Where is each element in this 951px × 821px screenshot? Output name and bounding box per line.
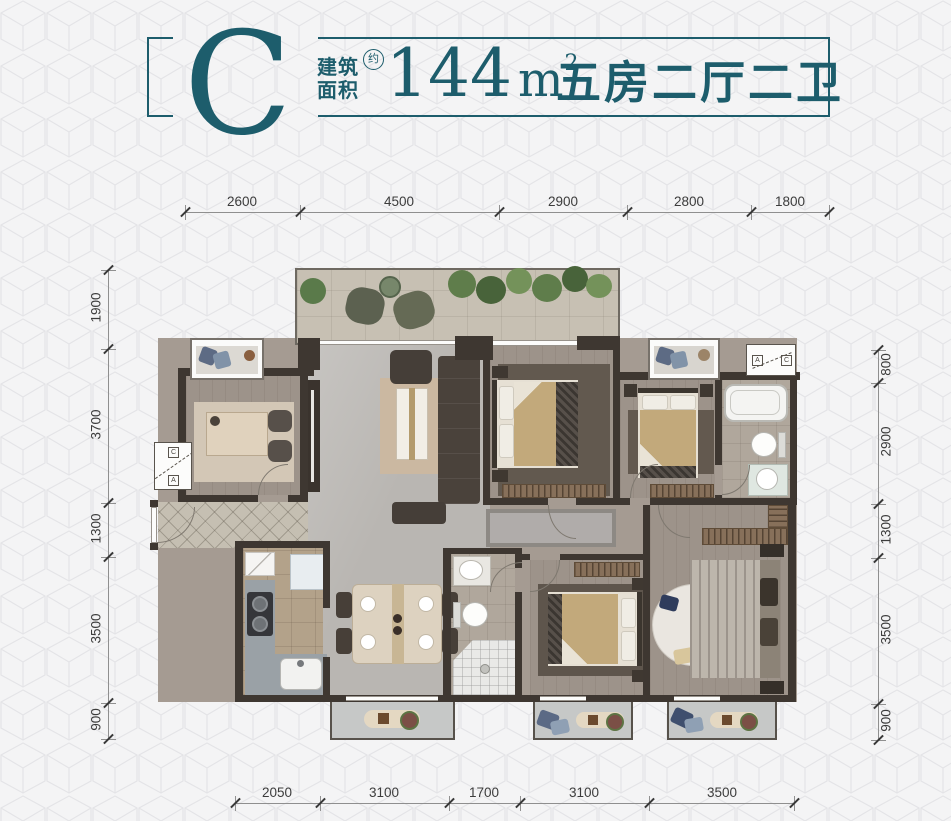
bed-headboard (637, 592, 642, 666)
toilet-tank (778, 432, 786, 458)
dimension-top: 2600 4500 2900 2800 1800 (185, 196, 830, 220)
wall (613, 338, 620, 505)
bed-headboard (492, 380, 497, 468)
fridge (290, 554, 327, 590)
dim-left-1: 1900 (89, 278, 104, 338)
centerpiece-icon (393, 614, 402, 623)
dining-chair (336, 628, 352, 654)
floorplan: C A A C (150, 262, 800, 747)
wall (150, 543, 158, 550)
study-chair (268, 410, 292, 432)
wall (298, 338, 320, 370)
burner-icon (252, 596, 268, 612)
bed-throw (556, 382, 578, 466)
dimension-line (185, 212, 830, 213)
dimension-right: 800 2900 1300 3500 900 (868, 350, 908, 741)
wall (790, 372, 797, 505)
wall (522, 554, 530, 560)
unit-letter: C (162, 6, 314, 164)
tray-icon (698, 349, 710, 361)
desk-lamp-icon (210, 416, 220, 426)
shower-drain-icon (480, 664, 490, 674)
pillow-icon (760, 578, 778, 606)
dim-right-4: 3500 (879, 600, 894, 660)
ottoman (392, 502, 446, 524)
dim-bottom-1: 2050 (247, 785, 307, 800)
balcony-tray-icon (588, 715, 598, 725)
floorplan-page: C 建筑 面积 约 144 m 2 五房二厅二卫 2600 4500 29 (0, 0, 951, 821)
wall (560, 554, 650, 560)
kitchen-cabinet (245, 552, 275, 576)
wall (238, 695, 330, 702)
dimension-bottom: 2050 3100 1700 3100 3500 (235, 786, 795, 810)
pillow-icon (621, 598, 636, 628)
wall (235, 541, 330, 548)
bedroom-b-bay-window (648, 338, 720, 380)
study-chair (268, 440, 292, 462)
dimension-left: 1900 3700 1300 3500 900 (90, 270, 120, 740)
nightstand (760, 681, 784, 694)
dim-top-1: 2600 (212, 194, 272, 209)
area-label: 建筑 面积 (317, 56, 359, 102)
balcony-door (346, 696, 438, 701)
wall (650, 498, 658, 505)
plant-icon (606, 713, 624, 731)
tv-cabinet (308, 380, 320, 492)
wall (178, 495, 258, 502)
dining-table-runner (392, 584, 404, 664)
pillow-icon (670, 351, 689, 370)
dim-left-3: 1300 (89, 499, 104, 559)
bed-blanket (640, 410, 696, 466)
wardrobe (768, 505, 788, 528)
pillow-icon (760, 618, 778, 646)
wall (643, 505, 650, 702)
plant-icon (562, 266, 588, 292)
plant-icon (476, 276, 506, 304)
dim-bottom-4: 3100 (554, 785, 614, 800)
wall (690, 498, 795, 505)
master-bed (690, 560, 760, 678)
sink-icon (459, 560, 483, 580)
bed-headboard (638, 388, 698, 393)
dim-bottom-3: 1700 (454, 785, 514, 800)
nightstand (492, 366, 508, 378)
pillow-icon (499, 424, 514, 458)
ac-platform-right: A C (746, 344, 796, 376)
wall (300, 368, 308, 502)
sink-icon (756, 468, 778, 490)
toilet-icon (751, 432, 777, 457)
balcony-door (674, 696, 720, 701)
ac-platform-left: C A (154, 442, 192, 490)
burner-icon (252, 616, 268, 632)
plate-icon (360, 596, 376, 612)
nightstand (700, 384, 713, 397)
area-number: 144 (386, 38, 512, 110)
dim-right-1: 800 (879, 335, 894, 395)
tv-screen (311, 390, 314, 482)
wall (715, 380, 722, 465)
dim-left-5: 900 (89, 690, 104, 750)
plate-icon (418, 634, 434, 650)
nightstand (492, 470, 508, 482)
plant-icon (532, 274, 562, 302)
faucet-icon (297, 660, 304, 667)
rooms-summary: 五房二厅二卫 (556, 46, 844, 111)
dim-bottom-5: 3500 (692, 785, 752, 800)
bed-blanket (514, 382, 556, 466)
wardrobe (574, 562, 640, 577)
sofa (438, 356, 480, 504)
plant-icon (506, 268, 532, 294)
wall (443, 548, 522, 554)
wardrobe (502, 484, 606, 498)
nightstand (760, 544, 784, 557)
wall (443, 548, 451, 702)
wall (323, 548, 330, 608)
balcony-tray-icon (378, 713, 389, 724)
wall (620, 498, 630, 505)
plant-icon (740, 713, 758, 731)
plant-icon (586, 274, 612, 298)
dim-top-3: 2900 (533, 194, 593, 209)
wall (515, 592, 522, 702)
bathtub-inner (730, 390, 780, 415)
dim-top-2: 4500 (369, 194, 429, 209)
wall (788, 505, 796, 702)
dim-right-5: 900 (879, 691, 894, 751)
pillow-icon (670, 395, 696, 410)
dim-top-4: 2800 (659, 194, 719, 209)
dim-left-2: 3700 (89, 395, 104, 455)
approx-badge: 约 (363, 49, 384, 70)
coffee-table-runner (409, 388, 415, 460)
area-value: 144 m 2 (386, 38, 578, 110)
pillow-icon (621, 631, 636, 661)
dim-right-3: 1300 (879, 500, 894, 560)
ac-letter-c: C (168, 447, 179, 458)
dining-chair (336, 592, 352, 618)
wall (483, 338, 490, 505)
toilet-tank (453, 602, 461, 628)
terrace-table (379, 276, 401, 298)
dim-bottom-2: 3100 (354, 785, 414, 800)
ac-letter-a: A (168, 475, 179, 486)
pillow-icon (499, 386, 514, 420)
armchair (390, 350, 432, 384)
wall (150, 500, 158, 507)
nightstand (624, 384, 637, 397)
toilet-icon (462, 602, 488, 627)
plant-icon (300, 278, 326, 304)
dim-top-5: 1800 (760, 194, 820, 209)
dimension-line (108, 270, 109, 740)
area-label-line2: 面积 (317, 79, 359, 102)
wardrobe (702, 528, 788, 545)
centerpiece-icon (393, 626, 402, 635)
dim-right-2: 2900 (879, 412, 894, 472)
ac-letter-c: C (781, 355, 792, 366)
dim-left-4: 3500 (89, 599, 104, 659)
bed-throw (548, 594, 562, 664)
balcony-tray-icon (722, 715, 732, 725)
bed-blanket (562, 594, 618, 664)
pillow-icon (642, 395, 668, 410)
plate-icon (360, 634, 376, 650)
wall (576, 498, 620, 505)
study-bay-window (190, 338, 264, 380)
area-label-line1: 建筑 (317, 56, 359, 79)
window (493, 340, 577, 346)
plant-icon (448, 270, 476, 298)
balcony-door (540, 696, 586, 701)
wardrobe (650, 484, 714, 498)
wall (235, 548, 243, 702)
plant-icon (400, 711, 419, 730)
tray-icon (244, 350, 255, 361)
ac-letter-a: A (752, 355, 763, 366)
wall (288, 495, 308, 502)
plate-icon (418, 596, 434, 612)
wall (490, 498, 548, 505)
